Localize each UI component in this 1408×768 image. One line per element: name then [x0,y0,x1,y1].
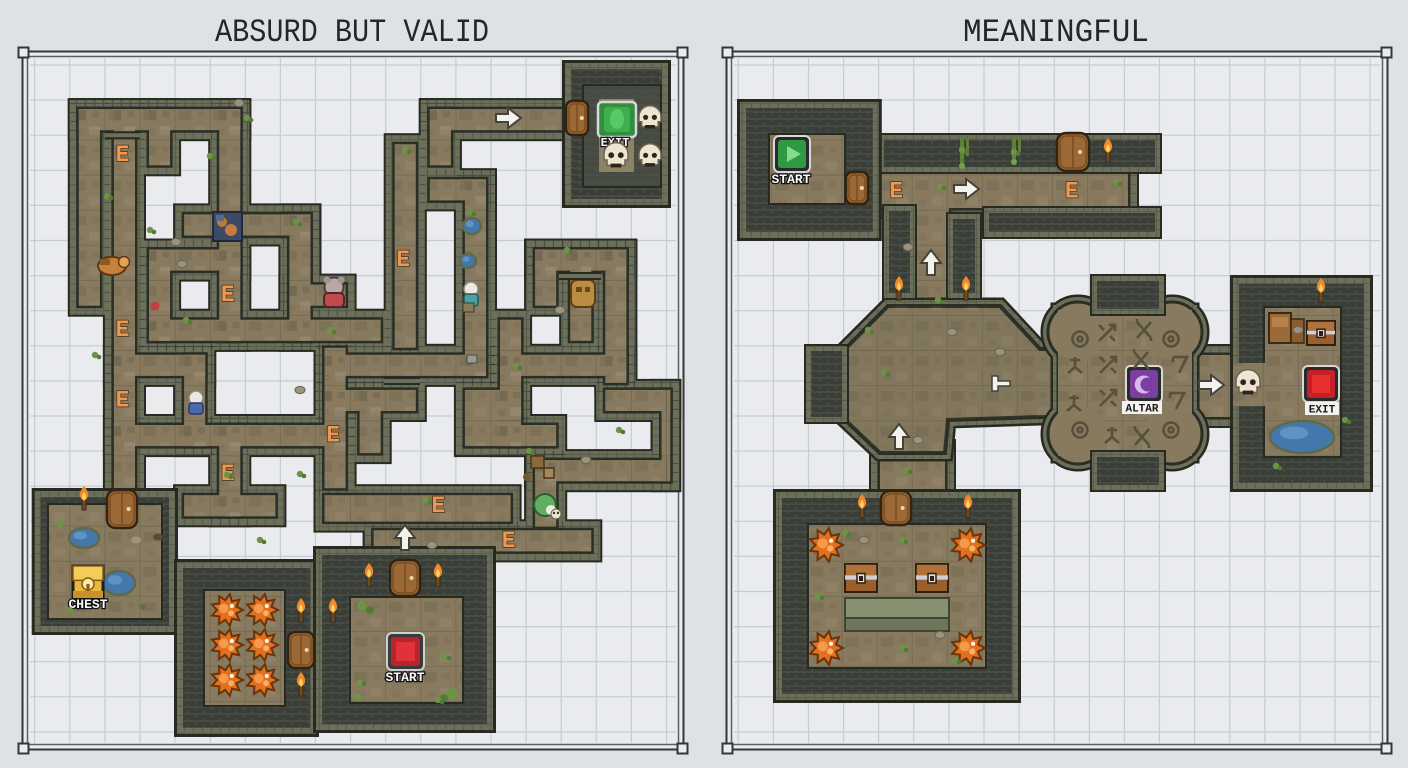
svg-text:E: E [431,493,445,519]
svg-text:ABSURD BUT VALID: ABSURD BUT VALID [215,14,489,51]
svg-text:CHEST: CHEST [68,597,107,612]
svg-text:ALTAR: ALTAR [1125,404,1158,416]
svg-text:START: START [385,670,424,685]
svg-text:START: START [771,172,810,187]
svg-text:E: E [116,387,130,413]
svg-text:E: E [1065,179,1079,205]
svg-text:E: E [396,247,410,273]
svg-text:E: E [116,317,130,343]
svg-text:EXIT: EXIT [1309,405,1336,417]
svg-text:MEANINGFUL: MEANINGFUL [963,14,1149,51]
svg-text:E: E [221,282,235,308]
svg-text:E: E [502,528,516,554]
svg-text:E: E [116,142,130,168]
svg-text:E: E [889,179,903,205]
svg-text:E: E [326,423,340,449]
